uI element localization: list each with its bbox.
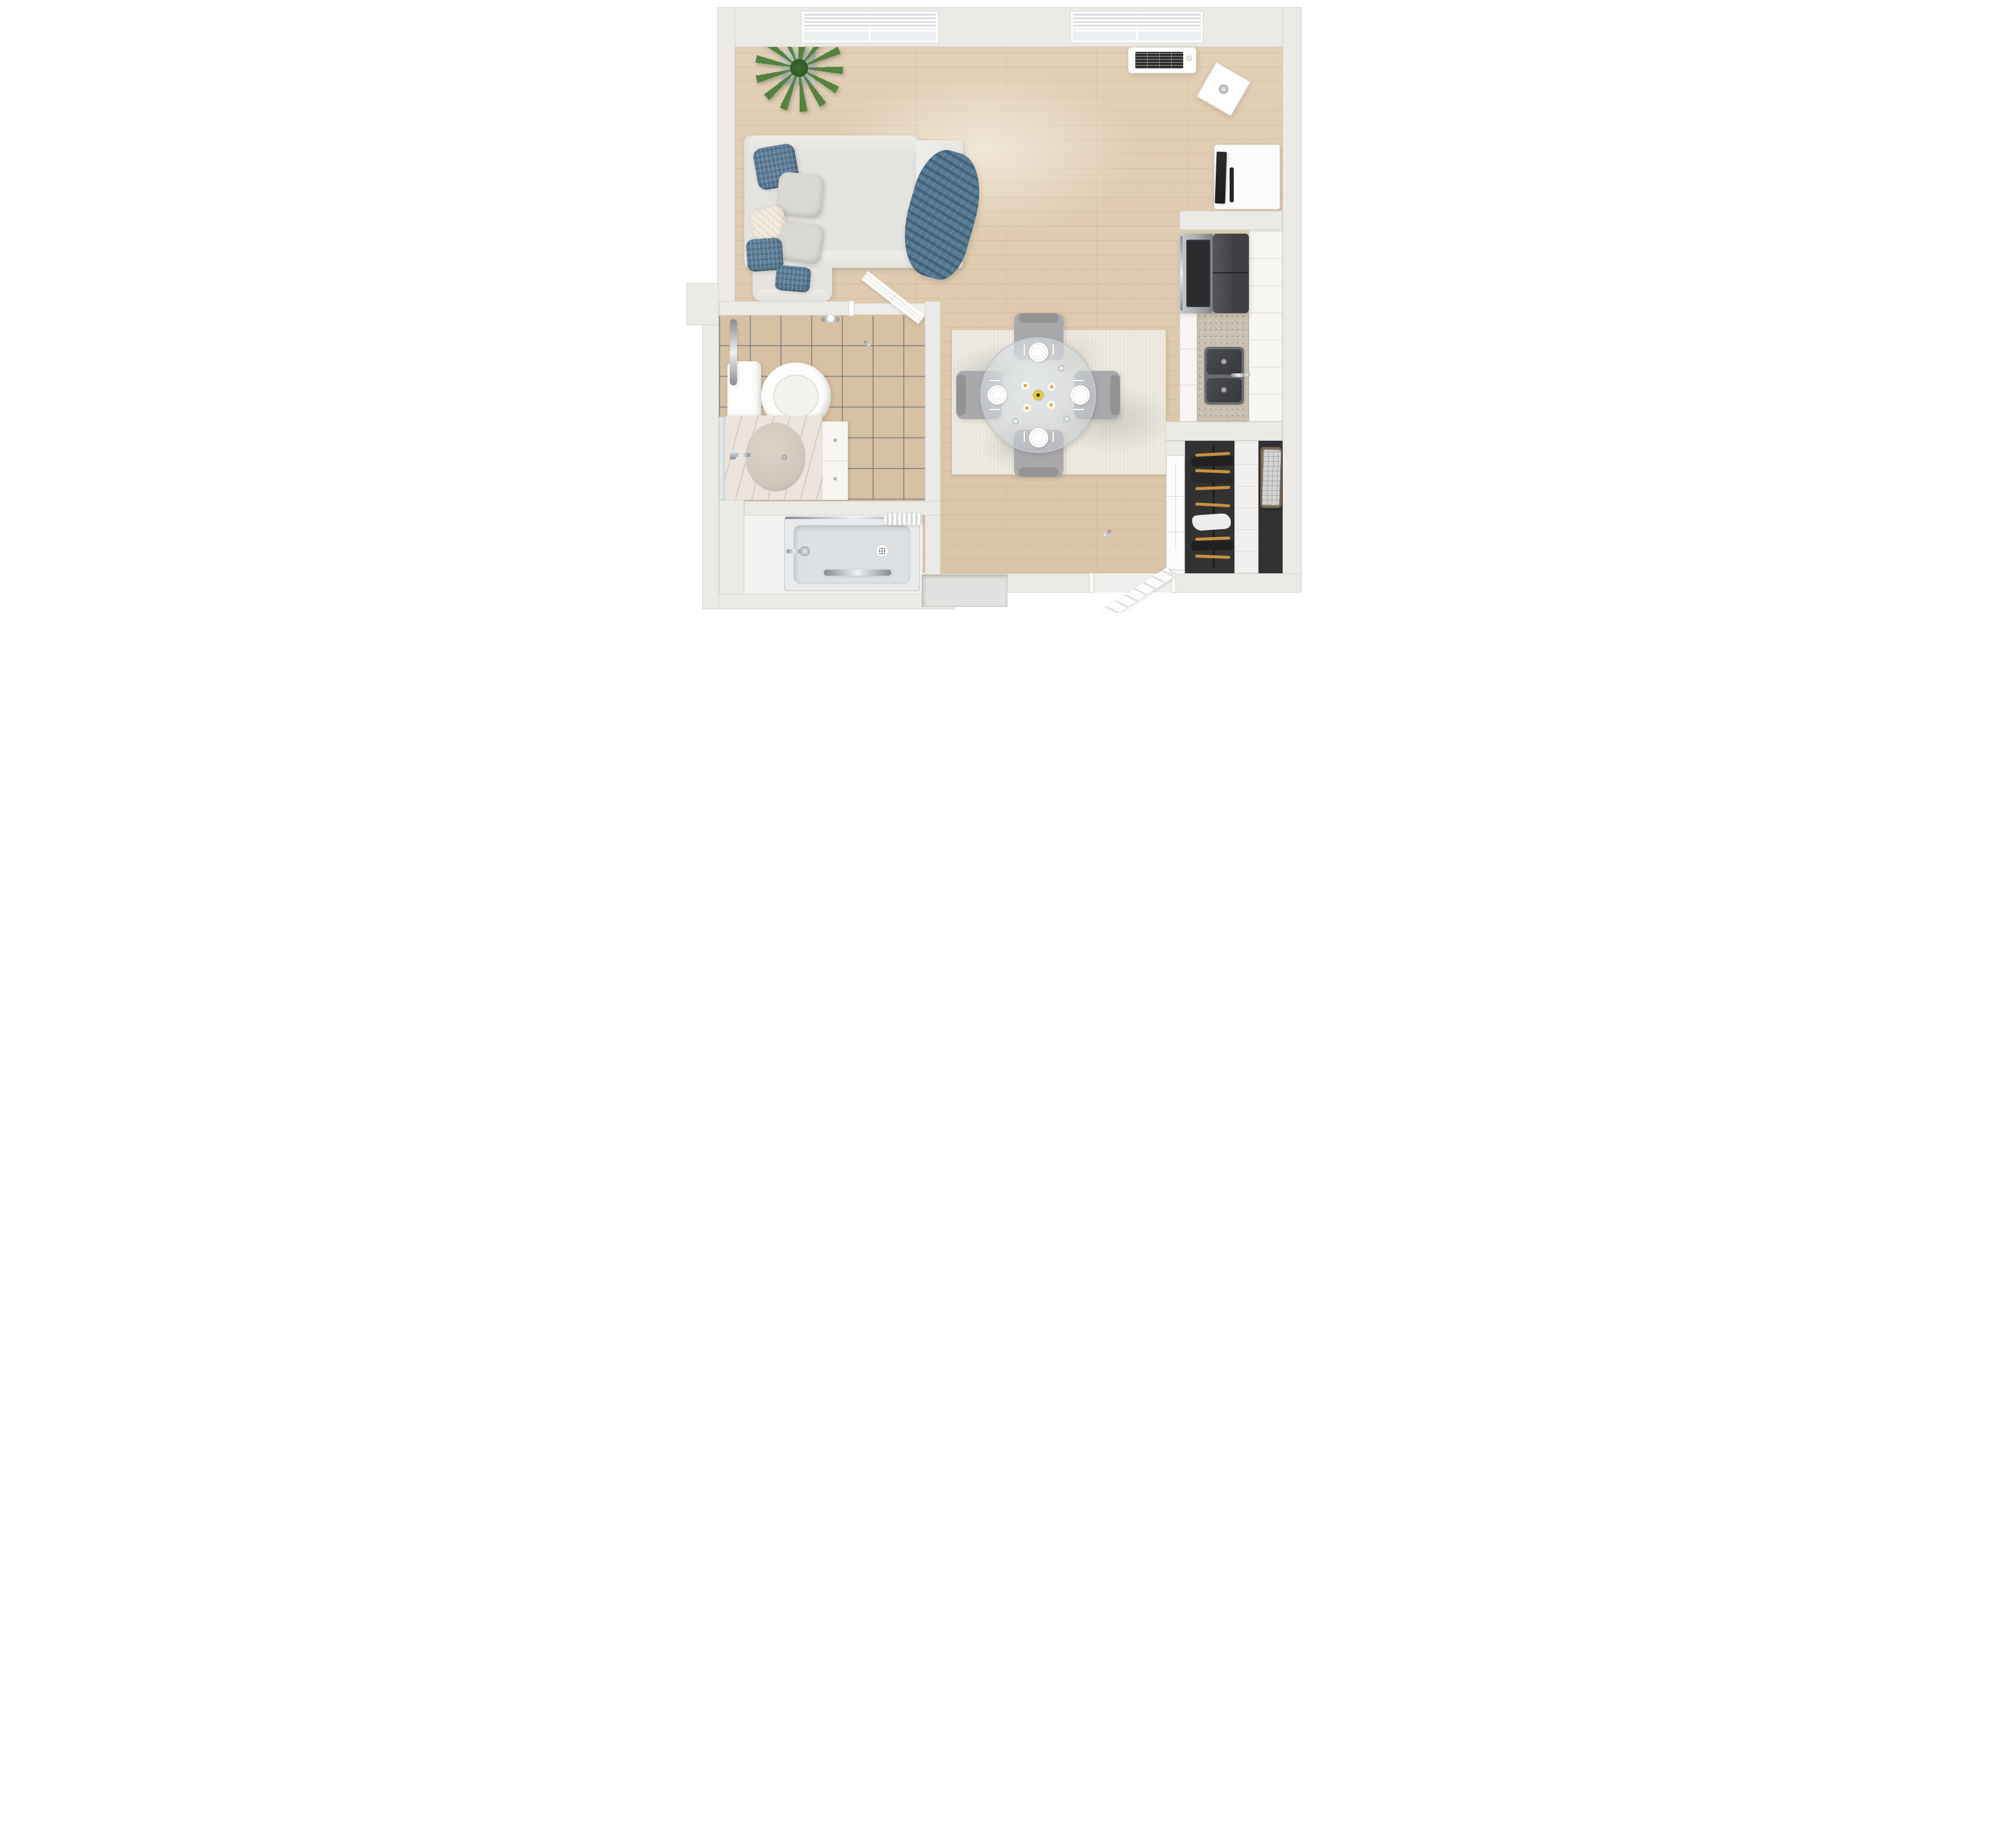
fork-south: [1024, 431, 1025, 442]
entry-door-frame-left: [1090, 573, 1094, 593]
spoon-south: [1053, 431, 1054, 442]
vanity-sink-bowl: [745, 423, 806, 491]
closet-door-frame-top: [1167, 456, 1184, 461]
floor-plan: [672, 0, 1344, 613]
wall-niche: [922, 574, 1007, 607]
wall-right: [1283, 7, 1302, 593]
window-blinds: [804, 14, 936, 28]
window-right: [1070, 11, 1204, 43]
wall-bathroom-right: [925, 301, 941, 594]
vanity-cabinet-knob-2: [833, 477, 837, 481]
vanity-cabinet: [823, 422, 848, 500]
wine-glass-1: [1058, 365, 1065, 372]
upper-cabinets: [1249, 230, 1283, 422]
dining-chair-west-back: [956, 375, 966, 415]
plant-center: [790, 59, 808, 77]
wall-left-notch: [686, 283, 719, 325]
fridge-door-seam: [1213, 272, 1249, 273]
clothes-3: [1191, 540, 1233, 550]
lamp-finial-icon: [1219, 84, 1228, 94]
bathroom-door-frame-left: [849, 301, 854, 316]
spoon-east: [1073, 380, 1084, 381]
vanity-cabinet-knob-1: [833, 438, 837, 442]
daisy-1: [1021, 382, 1029, 390]
shower-head: [800, 546, 810, 556]
vanity-faucet-handle: [730, 450, 736, 459]
knife-east: [1073, 409, 1084, 410]
plate-east: [1071, 385, 1090, 405]
closet-door-closed: [1167, 461, 1184, 569]
dining-chair-east-back: [1110, 375, 1120, 415]
shower-grab-bar: [824, 570, 891, 576]
clothes-1: [1191, 456, 1234, 467]
white-garment: [1192, 513, 1231, 531]
range-handle: [1180, 236, 1183, 311]
daisy-2: [1048, 383, 1056, 391]
dining-chair-south-back: [1019, 467, 1059, 477]
base-cabinets-left: [1180, 313, 1197, 422]
spoon-north: [1053, 344, 1054, 355]
vase-opening: [1036, 393, 1040, 397]
toilet-seat: [773, 375, 819, 418]
fork-west: [990, 380, 1001, 381]
wall-kitchen-header: [1180, 211, 1283, 230]
knife-west: [990, 409, 1001, 410]
ac-grill-icon: [1135, 52, 1183, 69]
wall-chase: [719, 500, 744, 609]
plate-west: [988, 385, 1007, 405]
sink-drain-bottom: [1221, 387, 1227, 393]
pillow-gray-2: [776, 220, 825, 266]
grab-bar-vertical: [730, 319, 737, 385]
basket-plaid-cloth: [1262, 450, 1281, 506]
toilet-paper-roll: [827, 314, 835, 322]
plate-north: [1029, 343, 1048, 362]
armchair-pillow: [774, 265, 811, 293]
daisy-3: [1023, 404, 1031, 412]
wall-bottom-wing: [702, 594, 955, 609]
vanity-mirror: [719, 417, 725, 500]
kitchen-faucet-base: [1243, 372, 1250, 378]
wine-glass-2: [1012, 418, 1019, 425]
tv: [1215, 152, 1227, 204]
fork-north: [1024, 344, 1025, 355]
refrigerator: [1213, 234, 1249, 313]
plate-south: [1029, 428, 1048, 447]
cooktop: [1186, 240, 1210, 307]
soundbar: [1230, 167, 1234, 202]
wall-left-upper: [717, 7, 735, 316]
wine-glass-3: [1063, 415, 1070, 422]
closet-shelf-tower: [1234, 441, 1258, 573]
ac-control-button: [1186, 55, 1192, 61]
sink-drain-top: [1221, 359, 1227, 364]
shower-drain-holes: [879, 547, 886, 555]
shower-curtain-bunched: [884, 513, 922, 525]
daisy-4: [1047, 401, 1055, 409]
wall-left-lower: [702, 316, 719, 609]
vanity-sink-drain: [782, 455, 787, 460]
clothes-2: [1191, 473, 1234, 484]
dining-chair-north-back: [1019, 313, 1059, 323]
wall-kitchen-closet-divider: [1166, 422, 1283, 441]
window-blinds: [1073, 14, 1201, 28]
wall-bathroom-top: [719, 301, 853, 316]
window-left: [801, 11, 939, 43]
